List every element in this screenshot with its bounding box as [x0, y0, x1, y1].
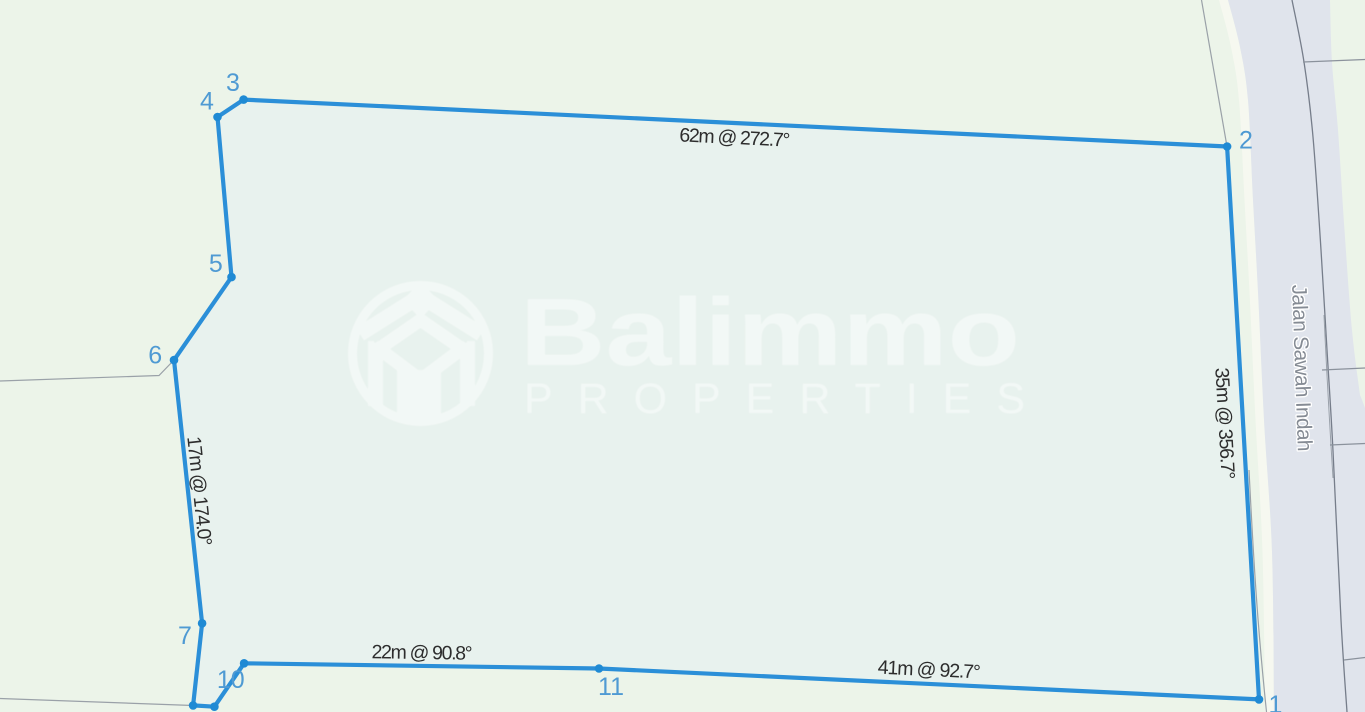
svg-text:22m @ 90.8°: 22m @ 90.8°	[371, 641, 472, 664]
svg-text:5: 5	[209, 250, 223, 278]
svg-text:11: 11	[598, 673, 624, 701]
svg-text:2: 2	[1239, 127, 1253, 155]
svg-text:1: 1	[1269, 691, 1283, 712]
svg-text:6: 6	[148, 342, 162, 370]
svg-text:4: 4	[200, 88, 214, 116]
svg-text:10: 10	[217, 666, 245, 694]
svg-text:Balimmo: Balimmo	[520, 279, 1020, 386]
svg-text:7: 7	[178, 622, 192, 650]
svg-text:3: 3	[226, 69, 240, 97]
